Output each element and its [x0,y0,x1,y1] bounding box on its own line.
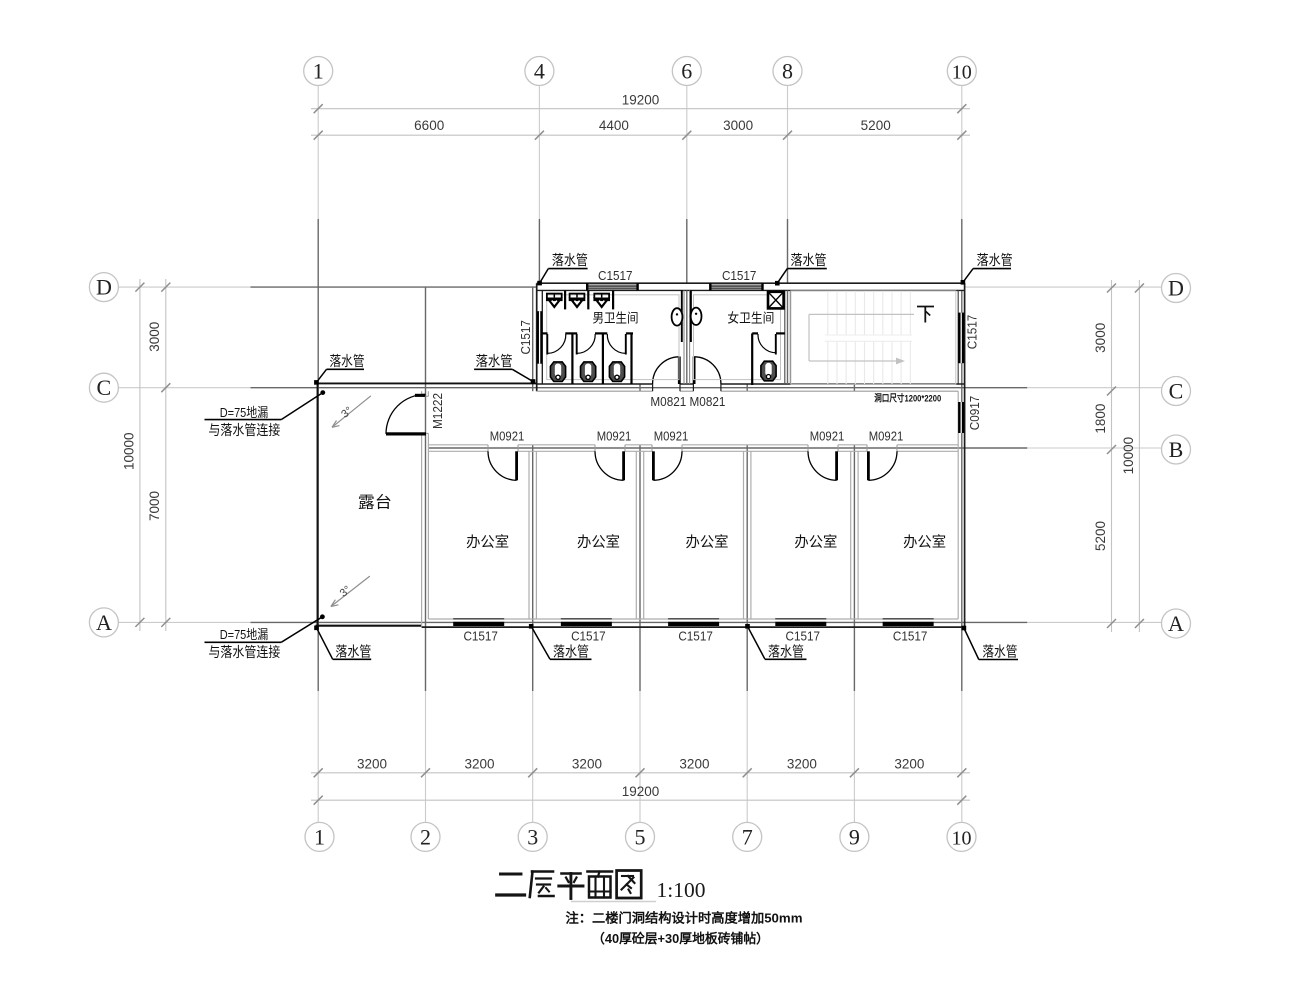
svg-text:M0921: M0921 [597,428,632,443]
svg-text:办公室: 办公室 [794,534,837,551]
svg-text:4400: 4400 [599,118,629,133]
svg-text:（40厚砼层+30厚地板砖铺帖）: （40厚砼层+30厚地板砖铺帖） [592,931,769,946]
svg-text:注：二楼门洞结构设计时高度增加50mm: 注：二楼门洞结构设计时高度增加50mm [566,911,803,926]
svg-text:M0921: M0921 [810,428,845,443]
svg-text:3200: 3200 [894,756,924,771]
svg-text:A: A [1168,611,1184,636]
svg-text:7000: 7000 [147,491,162,521]
svg-text:3200: 3200 [357,756,387,771]
svg-text:C1517: C1517 [722,268,757,283]
svg-text:2: 2 [420,824,431,849]
svg-text:C: C [97,375,112,400]
svg-text:落水管: 落水管 [330,353,365,369]
svg-text:M0921: M0921 [654,428,689,443]
svg-text:3000: 3000 [147,322,162,352]
svg-text:C1517: C1517 [678,628,713,643]
svg-text:C: C [1169,379,1184,404]
svg-text:4: 4 [534,59,545,84]
svg-text:M0921: M0921 [490,428,525,443]
svg-text:3200: 3200 [464,756,494,771]
svg-text:M1222: M1222 [430,393,445,429]
svg-text:C1517: C1517 [964,315,979,350]
svg-text:C1517: C1517 [786,628,821,643]
svg-text:M0821 M0821: M0821 M0821 [650,394,725,409]
svg-text:B: B [1169,437,1184,462]
svg-text:3000: 3000 [1093,323,1108,353]
svg-text:洞口尺寸1200*2200: 洞口尺寸1200*2200 [874,393,941,405]
svg-text:落水管: 落水管 [552,252,588,268]
svg-text:1:100: 1:100 [657,878,706,902]
svg-text:男卫生间: 男卫生间 [593,310,639,325]
svg-text:落水管: 落水管 [977,252,1013,268]
svg-text:3200: 3200 [572,756,602,771]
svg-text:落水管: 落水管 [335,643,371,659]
svg-text:办公室: 办公室 [686,534,729,551]
svg-text:8: 8 [782,59,793,84]
svg-text:3200: 3200 [787,756,817,771]
svg-text:5200: 5200 [861,118,891,133]
svg-text:落水管: 落水管 [791,252,827,268]
svg-text:10: 10 [952,827,972,849]
svg-text:落水管: 落水管 [982,644,1017,660]
svg-text:办公室: 办公室 [903,534,946,551]
svg-text:C1517: C1517 [571,628,606,643]
svg-text:9: 9 [849,824,860,849]
svg-text:1: 1 [313,59,324,84]
svg-text:落水管: 落水管 [476,353,513,369]
svg-text:7: 7 [742,824,753,849]
svg-text:10000: 10000 [1121,437,1136,475]
svg-text:A: A [96,610,112,635]
svg-text:3: 3 [527,824,538,849]
svg-text:10000: 10000 [121,432,136,470]
svg-text:露台: 露台 [358,493,392,511]
svg-text:1: 1 [314,824,325,849]
svg-text:C1517: C1517 [893,628,928,643]
svg-text:办公室: 办公室 [466,534,509,551]
svg-text:19200: 19200 [622,93,660,108]
svg-text:落水管: 落水管 [553,643,589,659]
svg-text:D: D [1168,276,1184,301]
svg-text:3000: 3000 [723,118,753,133]
svg-text:M0921: M0921 [869,428,904,443]
svg-text:5: 5 [635,824,646,849]
svg-text:女卫生间: 女卫生间 [727,310,774,325]
svg-text:1800: 1800 [1093,404,1108,434]
svg-text:C1517: C1517 [518,320,533,355]
svg-text:落水管: 落水管 [768,643,804,659]
svg-text:D=75地漏: D=75地漏 [220,627,269,642]
svg-text:C1517: C1517 [463,628,498,643]
svg-text:C1517: C1517 [598,268,633,283]
svg-text:办公室: 办公室 [577,534,620,551]
svg-text:6: 6 [681,59,692,84]
svg-text:与落水管连接: 与落水管连接 [208,422,280,438]
svg-text:D=75地漏: D=75地漏 [220,405,269,420]
svg-text:10: 10 [952,62,972,84]
svg-text:C0917: C0917 [967,396,982,431]
svg-text:3200: 3200 [679,756,709,771]
svg-text:与落水管连接: 与落水管连接 [208,644,280,660]
svg-text:19200: 19200 [622,784,660,799]
svg-text:D: D [96,275,112,300]
svg-text:6600: 6600 [414,118,444,133]
svg-text:5200: 5200 [1093,521,1108,551]
